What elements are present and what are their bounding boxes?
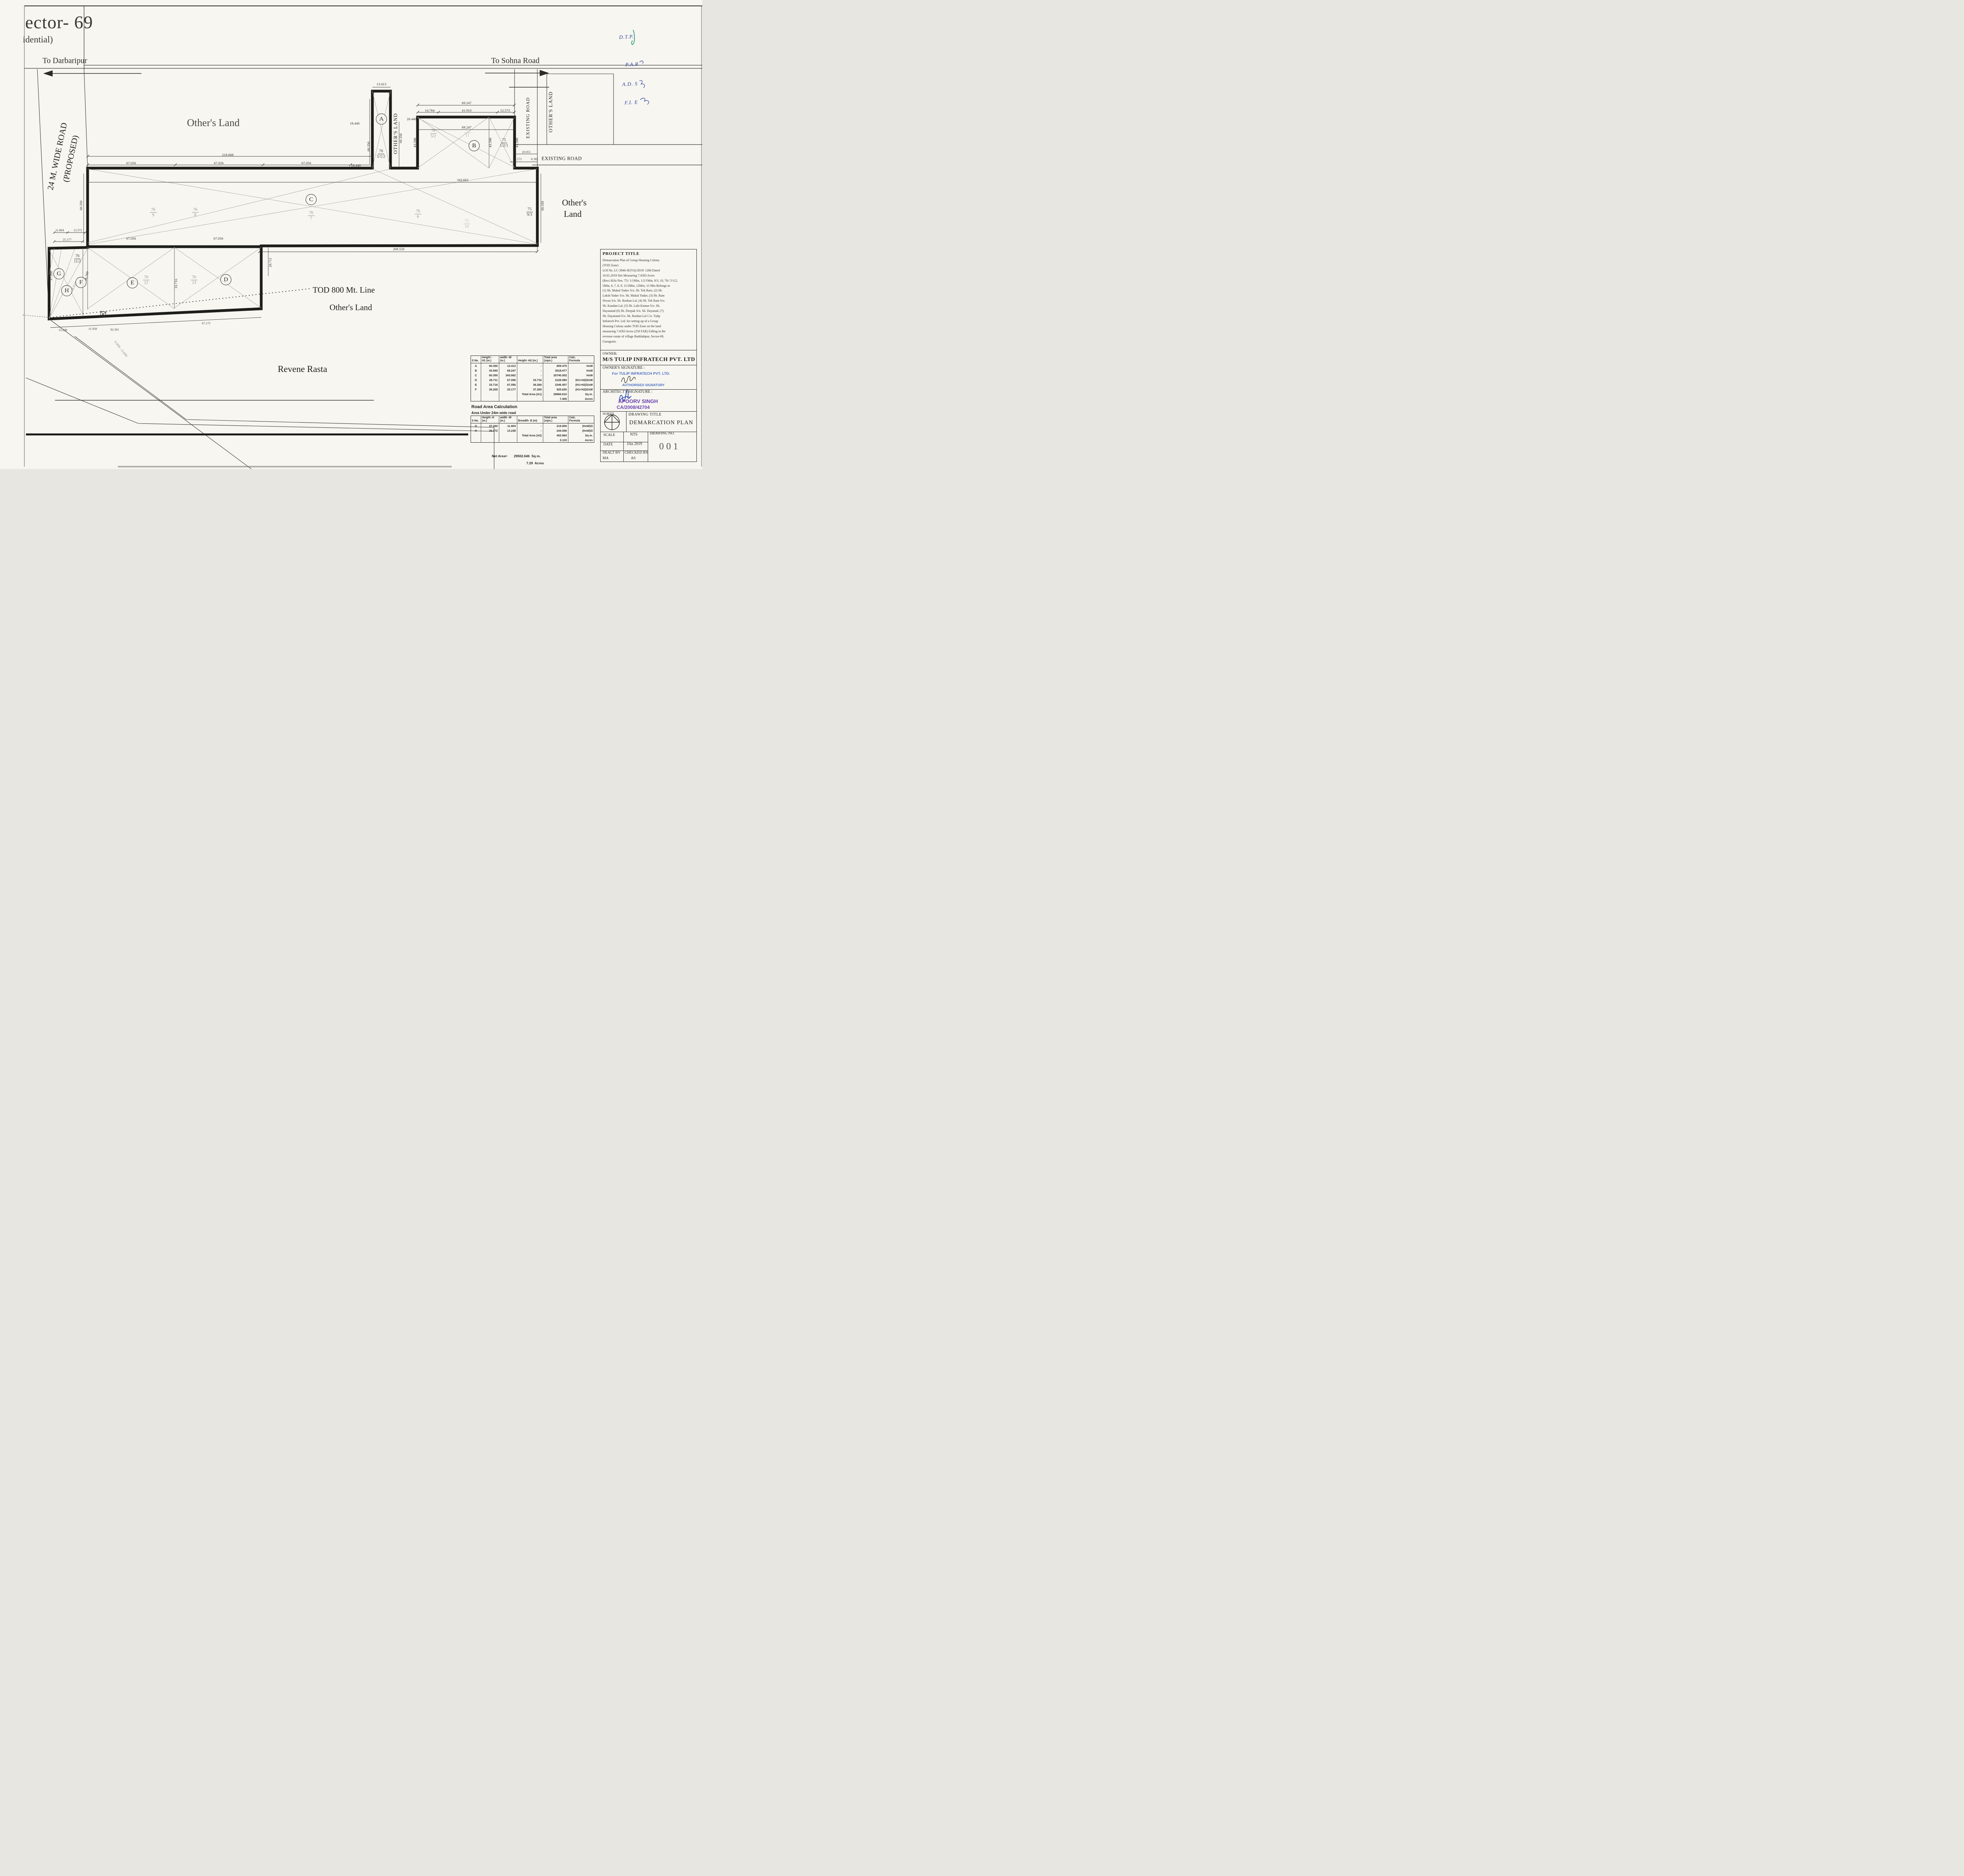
plot-circle-e: E xyxy=(127,277,138,288)
dimension-label: 11.958 xyxy=(88,327,97,331)
table-cell: - xyxy=(517,368,543,373)
scale-label: SCALE xyxy=(603,433,615,437)
table-cell: 343.662 xyxy=(499,373,517,377)
table-cell: (HxW)/2 xyxy=(568,428,594,433)
table-cell: 2346.457 xyxy=(543,382,568,387)
net-area-line: Net Area= 29502.646 Sq m. xyxy=(492,454,540,458)
table-cell: D xyxy=(471,377,481,382)
existing-road-vertical-label: EXISTING ROAD xyxy=(525,97,531,138)
table-cell: 219.909 xyxy=(543,423,568,429)
killa-numerator: 76 xyxy=(192,207,199,213)
table-cell: Total Area (A2) xyxy=(517,433,543,438)
dimension-label: 60.350 xyxy=(540,201,544,211)
table-header: S No. xyxy=(471,356,481,363)
table-cell: 20740.002 xyxy=(543,373,568,377)
table-cell: 7.405 xyxy=(543,396,568,401)
drawing-title: DEMARCATION PLAN xyxy=(629,420,693,426)
dimension-label: 14.764 xyxy=(425,108,435,112)
table-cell: 67.056 xyxy=(499,382,517,387)
table-cell xyxy=(481,433,499,438)
table-cell: - xyxy=(517,363,543,368)
dimension-label: 219.608 xyxy=(222,153,233,157)
plot-circle-d: D xyxy=(220,274,231,285)
dimension-label: 12.573 xyxy=(500,108,510,112)
killa-denominator: 8 xyxy=(192,213,199,218)
project-description-line: Dayanand (6) Sh. Deepak S/o. Sh. Dayanad… xyxy=(603,309,678,314)
killa-numerator: 76 xyxy=(308,211,315,216)
table-cell: 36.269 xyxy=(517,382,543,387)
table-cell: (H1+H2)/2xW xyxy=(568,382,594,387)
killa-denominator: 5/2 xyxy=(430,134,437,139)
project-description-line: (Rect./Kila Nos. 75// 1/1Min, 1/2/1Min, … xyxy=(603,278,678,284)
dimension-lines xyxy=(50,87,541,328)
table-header: Total area (sqm.) xyxy=(543,356,568,363)
dimension-label: 29.711 xyxy=(268,258,272,267)
killa-denominator: 9 xyxy=(150,213,157,218)
dashed-stub xyxy=(23,315,49,317)
plot-circle-h: H xyxy=(61,285,72,296)
drawing-no-label: DRAWING NO. xyxy=(650,432,675,436)
table-cell xyxy=(471,433,481,438)
table-cell xyxy=(517,396,543,401)
killa-number: 759/3 xyxy=(526,207,533,217)
dimension-label: 43.590 xyxy=(515,138,519,148)
date-label: DATE xyxy=(603,443,613,447)
net-area-value: 29502.646 xyxy=(514,454,529,458)
killa-numerator: 76 xyxy=(378,149,385,154)
dimension-label: 20.440 xyxy=(407,117,417,121)
table-header: Total area (sqm.) xyxy=(543,416,568,423)
tod-line-label: TOD 800 Mt. Line xyxy=(313,285,375,295)
owner-name: M/S TULIP INFRATECH PVT. LTD xyxy=(603,357,695,363)
sohna-arrow-line xyxy=(485,73,549,87)
killa-numerator: 75 xyxy=(464,219,470,224)
tb-divider xyxy=(648,432,648,462)
killa-number: 7510 xyxy=(464,219,470,229)
killa-numerator: 76 xyxy=(191,275,198,280)
killa-denominator: 12 xyxy=(143,280,150,285)
killa-numerator: 76 xyxy=(430,128,437,134)
table-cell: 463.964 xyxy=(543,433,568,438)
dimension-label: 92.301 xyxy=(110,328,119,332)
killa-numerator: 76 xyxy=(415,209,421,214)
killa-denominator: 1/2/1 xyxy=(500,143,508,148)
architect-stamp-name: APOORV SINGH xyxy=(618,398,658,404)
dimension-label: 8.382 xyxy=(531,158,538,161)
project-description-line: 16.01.2019 Site Measuring 7.4583 Acres xyxy=(603,273,678,278)
table-cell: 37.260 xyxy=(481,423,499,429)
dimension-label: 13.413 xyxy=(377,82,387,86)
project-description-line: revenue estate of village Badshahpur, Se… xyxy=(603,334,678,339)
table-header: Height -H2 (m.) xyxy=(517,356,543,363)
killa-denominator: 5/1/2 xyxy=(377,154,385,159)
fi-signature-icon xyxy=(640,98,649,104)
killa-numerator: 76 xyxy=(150,207,157,213)
road-area-title: Road Area Calculation xyxy=(471,405,517,409)
table-cell: (H1+H2)/2xW xyxy=(568,387,594,392)
project-title-label: PROJECT TITLE xyxy=(603,251,639,256)
table-cell: 67.056 xyxy=(499,377,517,382)
dimension-label: 11.804 xyxy=(55,229,64,232)
dimension-label: 69.247 xyxy=(462,101,472,105)
dimension-label: 343.662 xyxy=(457,178,468,182)
table-cell: Sq m. xyxy=(568,392,594,396)
table-cell: HxW xyxy=(568,368,594,373)
killa-number: 751/2/1 xyxy=(500,138,508,148)
net-area-label: Net Area= xyxy=(492,454,507,458)
table-cell: 37.260 xyxy=(517,387,543,392)
arrow-left-icon xyxy=(43,70,53,77)
table-cell: 13.413 xyxy=(499,363,517,368)
table-cell: 11.804 xyxy=(499,423,517,429)
table-cell: 244.056 xyxy=(543,428,568,433)
killa-numerator: 76 xyxy=(143,275,150,280)
killa-number: 7612 xyxy=(143,275,150,285)
dimension-label: 20.955 xyxy=(522,150,531,154)
table-cell: 36.872 xyxy=(481,428,499,433)
plot-circle-c: C xyxy=(306,194,317,205)
dimension-label: 12.573 xyxy=(513,158,522,161)
table-cell: 809.475 xyxy=(543,363,568,368)
table-cell xyxy=(499,433,517,438)
handwritten-fi: F.I. E xyxy=(625,99,638,106)
table-header: width -W (m.) xyxy=(499,416,517,423)
table-cell xyxy=(499,392,517,396)
dimension-label: 67.056 xyxy=(214,161,224,165)
net-area-acres-unit: Acres xyxy=(535,461,544,465)
table-cell: G xyxy=(471,423,481,429)
table-header: Height -H (m.) xyxy=(481,416,499,423)
others-land-bottom-label: Other's Land xyxy=(330,303,372,313)
killa-numerator: 75 xyxy=(464,128,471,133)
to-sohna-label: To Sohna Road xyxy=(491,57,539,66)
par-signature-icon xyxy=(639,61,643,64)
killa-number: 7511 xyxy=(464,128,471,137)
table-cell: H xyxy=(471,428,481,433)
killa-denominator: 11 xyxy=(464,133,471,138)
dimension-label: 43.590 xyxy=(488,138,492,148)
tb-divider xyxy=(601,365,696,365)
owner-stamp-auth: AUTHORISED SIGNATORY xyxy=(622,383,665,387)
table-cell: 33.716 xyxy=(517,377,543,382)
killa-denominator: 10 xyxy=(464,224,470,229)
table-cell: Acres xyxy=(568,438,594,443)
dimension-label: 67.056 xyxy=(214,236,224,240)
dimension-label: 60.350 xyxy=(399,134,403,143)
dimension-label: 13.372 xyxy=(73,229,82,232)
others-land-topleft-label: Other's Land xyxy=(187,117,240,129)
table-cell: B xyxy=(471,368,481,373)
owner-signature-label: OWNER'S SIGNATURE : xyxy=(603,366,645,370)
plot-circle-g: G xyxy=(53,268,64,279)
dealt-by-value: MA xyxy=(603,456,608,460)
table-cell: C xyxy=(471,373,481,377)
tb-divider xyxy=(601,411,696,412)
dimension-label: 33.716 xyxy=(174,279,178,289)
table-cell xyxy=(481,396,499,401)
table-cell: - xyxy=(517,373,543,377)
table-cell xyxy=(481,392,499,396)
table-cell xyxy=(499,438,517,443)
table-cell: Sq m. xyxy=(568,433,594,438)
table-cell: - xyxy=(517,423,543,429)
project-description-line: Infratech Pvt. Ltd. for setting up of a … xyxy=(603,319,678,324)
table-cell xyxy=(499,396,517,401)
dimension-label: 20.440 xyxy=(402,166,412,170)
sheet-title: ector- 69 xyxy=(25,12,93,33)
table-cell xyxy=(471,396,481,401)
road-area-subtitle: Area Under 24m wide road xyxy=(471,411,516,415)
others-land-gap-label: OTHER'S LAND xyxy=(392,113,399,154)
revene-rasta-label: Revene Rasta xyxy=(278,364,327,374)
killa-numerator: 76 xyxy=(74,254,81,259)
project-description-line: Laksh Yadav S/o. Sh. Mukul Yadav, (3) Sh… xyxy=(603,293,678,299)
table-cell: (H1+H2)/2xW xyxy=(568,377,594,382)
ad-signature-icon xyxy=(639,81,645,88)
tb-divider xyxy=(601,432,696,432)
project-description-line: (TOD Zone) xyxy=(603,263,678,268)
architect-stamp-reg: CA/2008/42704 xyxy=(617,405,650,410)
dimension-label: 13.238 xyxy=(59,328,67,332)
net-area-unit: Sq m. xyxy=(531,454,540,458)
scanned-drawing-page: ector- 69 idential) To Darbaripur To Soh… xyxy=(0,0,702,469)
project-description-line: Sh. Dayanand S/o. Sh. Roshan Lal C/o. Tu… xyxy=(603,314,678,319)
table-cell: HxW xyxy=(568,373,594,377)
dimension-label: 67.175 xyxy=(202,322,211,325)
table-cell: 43.590 xyxy=(481,368,499,373)
existing-road-horizontal xyxy=(515,145,702,165)
table-cell: A xyxy=(471,363,481,368)
dimension-label: 43.590 xyxy=(413,138,417,148)
table-cell xyxy=(481,438,499,443)
project-description-line: Gurugram. xyxy=(603,339,678,344)
table-cell: 2126.580 xyxy=(543,377,568,382)
top-road-lines xyxy=(24,65,702,68)
killa-number: 768 xyxy=(192,207,199,217)
table-cell: 60.350 xyxy=(481,363,499,368)
table-cell: - xyxy=(517,428,543,433)
project-description-line: (1) Sh. Mukul Yadav S/o. Sh. Tek Ram, (2… xyxy=(603,288,678,293)
road-area-table: S No.Height -H (m.)width -W (m.)Breadth-… xyxy=(471,416,594,443)
bottom-field-lines xyxy=(26,321,494,469)
project-description: Demarcation Plan of Group Housing Colony… xyxy=(603,258,678,344)
drawing-no-value: 001 xyxy=(659,442,680,452)
table-cell: 69.247 xyxy=(499,368,517,373)
dimension-label: 60.350 xyxy=(366,142,370,152)
dimension-label: 18.440 xyxy=(351,163,361,167)
killa-denominator: 6 xyxy=(415,214,421,219)
plan-linework xyxy=(0,0,702,469)
killa-denominator: 11/2 xyxy=(74,259,81,264)
dealt-by-label: DEALT BY xyxy=(603,451,621,455)
net-area-acres-line: 7.29 Acres xyxy=(526,461,544,465)
project-description-line: Demarcation Plan of Group Housing Colony xyxy=(603,258,678,263)
handwritten-par: P.A.R xyxy=(625,61,639,68)
table-header: Calc. Formula xyxy=(568,356,594,363)
table-cell: 925.620 xyxy=(543,387,568,392)
table-header: width -W (m.) xyxy=(499,356,517,363)
killa-denominator: 13 xyxy=(191,280,198,285)
table-cell: 29966.610 xyxy=(543,392,568,396)
date-value: JAn 2019 xyxy=(627,442,642,446)
dimension-label: 67.056 xyxy=(126,236,136,240)
handwritten-dtp: D.T.P. xyxy=(619,33,634,40)
table-cell: 25.177 xyxy=(499,387,517,392)
table-cell: F xyxy=(471,387,481,392)
table-cell: 36.269 xyxy=(481,387,499,392)
dimension-label: 209.550 xyxy=(393,247,404,251)
killa-denominator: 9/3 xyxy=(526,213,533,217)
net-area-acres: 7.29 xyxy=(526,461,533,465)
table-cell xyxy=(471,392,481,396)
table-cell: 33.716 xyxy=(481,382,499,387)
table-cell xyxy=(517,438,543,443)
killa-number: 767 xyxy=(308,211,315,220)
checked-by-value: AS xyxy=(631,456,636,460)
table-cell: HxW xyxy=(568,363,594,368)
project-description-line: Sh. Kundan Lal, (5) Sh. Lalit Kumar S/o.… xyxy=(603,304,678,309)
tb-divider xyxy=(601,350,696,350)
table-header: Calc. Formula xyxy=(568,416,594,423)
others-land-topright-label: OTHER'S LAND xyxy=(548,92,554,132)
checked-by-label: CHECKED BY xyxy=(625,451,648,455)
table-cell: 13.238 xyxy=(499,428,517,433)
killa-number: 765/1/2 xyxy=(377,149,385,159)
project-description-line: Housing Colony under TOD Zone on the lan… xyxy=(603,324,678,329)
killa-number: 769 xyxy=(150,207,157,217)
killa-numerator: 75 xyxy=(501,138,507,143)
table-cell: 60.350 xyxy=(481,373,499,377)
tb-divider xyxy=(623,432,624,462)
table-cell: (HxW)/2 xyxy=(568,423,594,429)
existing-road-horizontal-label: EXISTING ROAD xyxy=(542,156,582,162)
plot-circle-b: B xyxy=(469,140,480,151)
table-header: Height - H1 (m.) xyxy=(481,356,499,363)
dimension-label: 60.350 xyxy=(79,201,83,211)
dimension-label: 67.056 xyxy=(302,161,311,165)
dimension-label: 67.056 xyxy=(126,161,136,165)
plot-circle-a: A xyxy=(376,114,387,125)
others-land-right-label-1: Other's xyxy=(562,198,587,208)
killa-number: 766 xyxy=(415,209,421,219)
dimension-label: 25.177 xyxy=(63,238,71,242)
killa-number: 7611/2 xyxy=(74,254,81,264)
project-description-line: 5Min, 6, 7, 8, 9, 11/2Min, 12Min, 13 Min… xyxy=(603,284,678,289)
table-cell: E xyxy=(471,382,481,387)
project-description-line: LOI No. LC-3940-JE(VA)/2019/ 1280 Dated xyxy=(603,268,678,273)
others-land-right-label-2: Land xyxy=(564,209,581,219)
killa-number: 7613 xyxy=(191,275,198,285)
dimension-label: 41.910 xyxy=(462,108,472,112)
dimension-label: 18.440 xyxy=(350,121,360,125)
tb-divider xyxy=(626,411,627,432)
owner-label: OWNER: xyxy=(603,352,617,356)
killa-number: 765/2 xyxy=(430,128,437,138)
area-calculation-table: S No.Height - H1 (m.)width -W (m.)Height… xyxy=(471,355,594,401)
arrow-right-icon xyxy=(540,70,549,76)
table-cell: 0.115 xyxy=(543,438,568,443)
north-label: NORTH xyxy=(603,412,614,416)
killa-denominator: 7 xyxy=(308,216,315,221)
drawing-title-label: DRAWING TITLE xyxy=(628,412,661,417)
dimension-label: 37.260 xyxy=(49,271,53,281)
plot-circle-f: F xyxy=(75,277,86,288)
scale-value: NTS xyxy=(630,432,638,437)
to-darbaripur-label: To Darbaripur xyxy=(42,57,87,66)
owner-stamp-for: For TULIP INFRATECH PVT. LTD. xyxy=(612,372,670,376)
plot-divisions xyxy=(83,117,489,317)
handwritten-ad: A.D. S xyxy=(622,81,638,88)
sheet-subtitle: idential) xyxy=(23,35,53,45)
table-cell: 3018.477 xyxy=(543,368,568,373)
architect-signature-label: ARCHITECT'S SIGNATURE : xyxy=(603,390,652,394)
project-description-line: measuring 7.4583 Acres (250 FAR) Falling… xyxy=(603,329,678,334)
table-cell: 29.711 xyxy=(481,377,499,382)
table-cell: Total Area (A1) xyxy=(517,392,543,396)
killa-numerator: 75 xyxy=(526,207,533,212)
table-cell xyxy=(471,438,481,443)
table-cell: Acres xyxy=(568,396,594,401)
project-description-line: Niwas S/o. Sh. Roshan Lal, (4) Sh. Tek R… xyxy=(603,299,678,304)
table-header: Breadth- B (m) xyxy=(517,416,543,423)
table-header: S No. xyxy=(471,416,481,423)
